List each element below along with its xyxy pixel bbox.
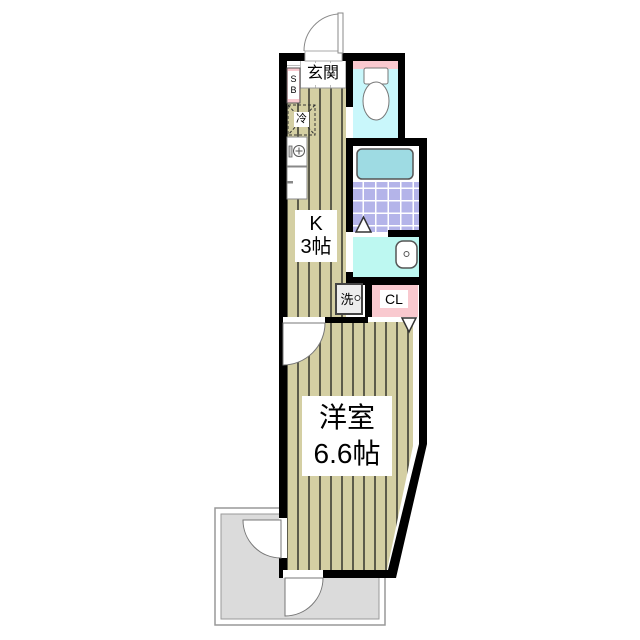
kitchen-name: K: [309, 213, 322, 236]
stove: [287, 137, 307, 166]
main-room-label: 洋室 6.6帖: [302, 396, 392, 476]
kitchen-sink: [287, 167, 307, 199]
wall-bath-top: [346, 138, 427, 146]
wall-right-upper: [419, 146, 427, 322]
wall-kitchen-room: [325, 317, 368, 323]
wash-basin: [396, 241, 417, 268]
wall-kitchen-bath: [346, 145, 353, 232]
floor-plan-drawing: [0, 0, 640, 640]
faucet-icon: [287, 181, 293, 184]
bathtub: [357, 149, 413, 179]
wall-toilet-left: [346, 61, 353, 107]
shoe-box-label: SB: [288, 71, 299, 99]
toilet-door-opening: [346, 107, 353, 138]
toilet-bowl: [363, 82, 389, 120]
wall-toilet-right: [398, 61, 405, 145]
entrance-door-leaf: [338, 13, 343, 53]
washer-label: 洗: [337, 289, 357, 311]
main-room-size: 6.6帖: [314, 436, 381, 472]
entrance-label: 玄関: [301, 63, 345, 85]
basin-drain: [404, 252, 409, 257]
kitchen-size: 3帖: [300, 236, 331, 259]
wall-left: [279, 53, 287, 578]
wall-closet-left: [365, 285, 372, 317]
entrance-door-swing-arc: [304, 14, 338, 51]
refrigerator-label: 冷: [294, 112, 309, 127]
balcony-door-opening-bottom: [283, 570, 323, 578]
floor-plan: 玄関 SB 冷 K 3帖 洗 CL 洋室 6.6帖: [0, 0, 640, 640]
entrance-threshold: [305, 51, 342, 61]
wall-toilet-top: [346, 53, 405, 61]
entrance-door: [304, 13, 343, 61]
closet-label: CL: [380, 290, 408, 308]
kitchen-room-door-opening: [283, 317, 325, 323]
wall-bath-bottom: [388, 230, 419, 237]
toilet: [363, 68, 389, 120]
kitchen-label: K 3帖: [295, 210, 337, 262]
stove-panel: [289, 146, 292, 157]
main-room-name: 洋室: [319, 400, 375, 436]
